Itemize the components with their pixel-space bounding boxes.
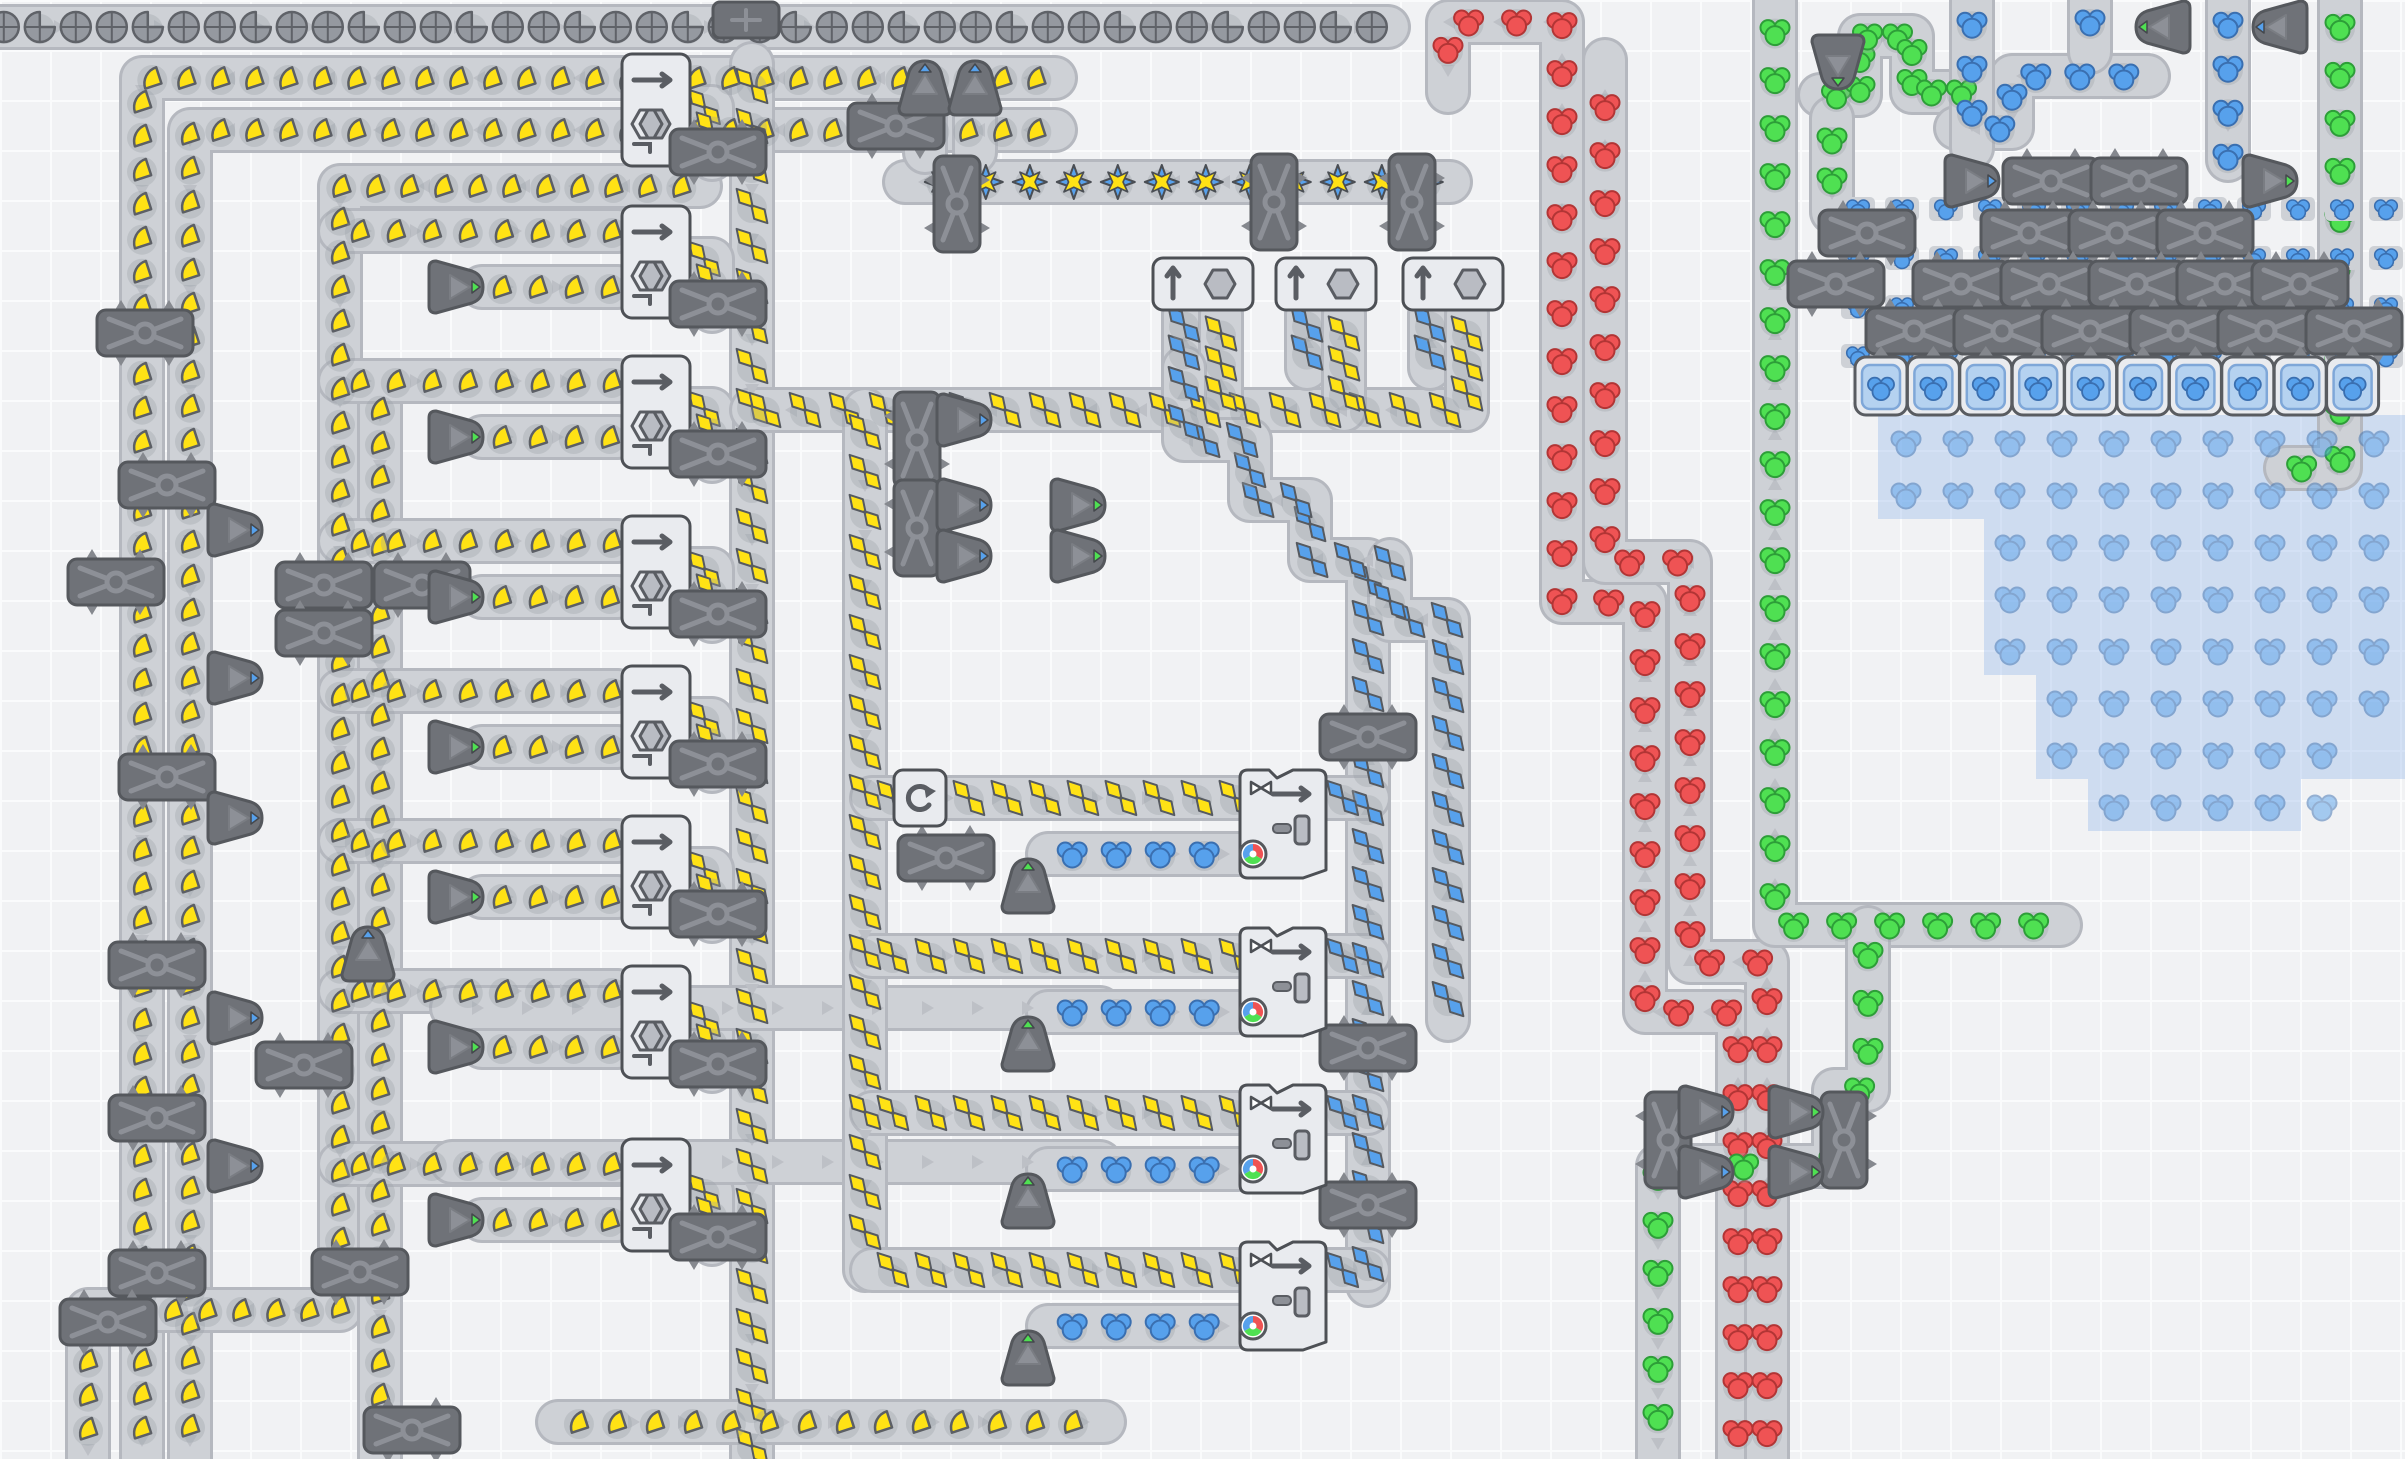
item-red-color-blob [1675, 873, 1705, 903]
item-yellow-wedge-shape [511, 65, 541, 95]
balancer-h[interactable] [276, 600, 372, 666]
item-yellow-wedge-shape [381, 368, 411, 398]
item-blue-color-blob [1101, 841, 1131, 871]
item-red-color-blob [1723, 1324, 1753, 1354]
item-yellow-wedge-shape [561, 978, 591, 1008]
item-green-color-blob [1760, 163, 1790, 193]
balancer-h[interactable] [109, 1240, 205, 1306]
item-yellow-wedge-shape [127, 225, 157, 255]
item-yellow-wedge-shape [595, 734, 625, 764]
item-gray-quartered-circle-shape [817, 12, 847, 44]
item-yellow-wedge-shape [365, 872, 395, 902]
item-blue-color-blob [1189, 1156, 1219, 1186]
item-red-color-blob [1723, 1276, 1753, 1306]
item-yellow-wedge-shape [175, 1175, 205, 1205]
goal-acceptor-cell[interactable] [2327, 346, 2379, 415]
balancer-h[interactable] [1320, 1172, 1416, 1238]
item-yellow-wedge-shape [525, 1151, 555, 1181]
item-yellow-wedge-shape [175, 835, 205, 865]
item-yellow-wedge-shape [1058, 1409, 1088, 1439]
balancer-v[interactable] [924, 156, 990, 252]
item-red-color-blob [1630, 697, 1660, 727]
item-red-color-blob [1547, 60, 1577, 90]
item-red-color-blob [1630, 649, 1660, 679]
item-yellow-wedge-shape [525, 678, 555, 708]
item-yellow-wedge-shape [341, 117, 371, 147]
item-yellow-wedge-shape [205, 65, 235, 95]
item-blue-color-blob [1057, 841, 1087, 871]
item-green-color-blob [1760, 67, 1790, 97]
item-gray-quartered-circle-shape [97, 12, 127, 44]
item-yellow-wedge-shape [417, 528, 447, 558]
item-blue-color-blob [2213, 143, 2243, 173]
item-yellow-wedge-shape [523, 424, 553, 454]
item-yellow-wedge-shape [294, 1297, 324, 1327]
item-blue-color-blob [1145, 999, 1175, 1029]
item-green-color-blob [1875, 912, 1905, 942]
item-yellow-wedge-shape [127, 89, 157, 119]
item-yellow-wedge-shape [523, 734, 553, 764]
item-yellow-wedge-shape [409, 117, 439, 147]
item-red-color-blob [1695, 949, 1725, 979]
item-yellow-wedge-shape [489, 978, 519, 1008]
stacker-up[interactable] [1153, 258, 1253, 310]
item-yellow-wedge-shape [453, 828, 483, 858]
item-yellow-wedge-shape [595, 1034, 625, 1064]
balancer-h[interactable] [97, 300, 193, 366]
item-yellow-wedge-shape [817, 65, 847, 95]
item-green-color-blob [1760, 643, 1790, 673]
balancer-h[interactable] [670, 1204, 766, 1270]
item-yellow-wedge-shape [175, 121, 205, 151]
tunnel-blue[interactable] [208, 1140, 262, 1192]
item-blue-color-blob [1997, 83, 2027, 113]
item-red-color-blob [1664, 999, 1694, 1029]
item-yellow-wedge-shape [453, 368, 483, 398]
tunnel-blue[interactable] [2253, 1, 2307, 53]
item-red-color-blob [1663, 549, 1693, 579]
item-red-color-blob [1547, 588, 1577, 618]
item-yellow-wedge-shape [381, 678, 411, 708]
item-blue-color-blob [1101, 1313, 1131, 1343]
item-green-color-blob [1760, 115, 1790, 145]
item-yellow-wedge-shape [158, 1297, 188, 1327]
stacker-up[interactable] [1403, 258, 1503, 310]
balancer-h[interactable] [670, 881, 766, 947]
item-yellow-wedge-shape [678, 1409, 708, 1439]
item-yellow-wedge-shape [525, 368, 555, 398]
item-yellow-wedge-shape [325, 750, 355, 780]
item-red-color-blob [1630, 889, 1660, 919]
item-yellow-wedge-shape [365, 396, 395, 426]
item-gray-quartered-circle-shape [1177, 12, 1207, 44]
item-red-color-blob [1712, 999, 1742, 1029]
item-red-color-blob [1547, 540, 1577, 570]
item-yellow-wedge-shape [205, 117, 235, 147]
item-green-color-blob [2325, 61, 2355, 91]
item-yellow-wedge-shape [127, 701, 157, 731]
balancer-h[interactable] [312, 1239, 408, 1305]
item-yellow-wedge-shape [365, 498, 395, 528]
item-blue-color-blob [1057, 999, 1087, 1029]
item-yellow-wedge-shape [375, 117, 405, 147]
item-red-color-blob [1547, 108, 1577, 138]
item-yellow-wedge-shape [417, 1151, 447, 1181]
item-yellow-wedge-shape [360, 173, 390, 203]
balancer-h[interactable] [1320, 1015, 1416, 1081]
balancer-h[interactable] [1981, 200, 2077, 266]
balancer-h[interactable] [256, 1032, 352, 1098]
item-red-color-blob [1630, 745, 1660, 775]
balancer-h[interactable] [670, 1031, 766, 1097]
item-yellow-wedge-shape [579, 65, 609, 95]
item-yellow-wedge-shape [545, 65, 575, 95]
item-yellow-wedge-shape [260, 1297, 290, 1327]
item-yellow-wedge-shape [523, 274, 553, 304]
item-yellow-wedge-shape [127, 1415, 157, 1445]
item-yellow-wedge-shape [462, 173, 492, 203]
item-gray-quartered-circle-shape [385, 12, 415, 44]
item-green-color-blob [1971, 912, 2001, 942]
item-yellow-wedge-shape [175, 427, 205, 457]
item-yellow-wedge-shape [175, 189, 205, 219]
item-yellow-wedge-shape [273, 65, 303, 95]
item-yellow-wedge-shape [325, 308, 355, 338]
tunnel-green[interactable] [2136, 1, 2190, 53]
game-viewport[interactable] [0, 0, 2405, 1459]
item-red-color-blob [1547, 444, 1577, 474]
item-yellow-wedge-shape [487, 1034, 517, 1064]
balancer-h[interactable] [670, 119, 766, 185]
item-red-color-blob [1723, 1420, 1753, 1450]
item-yellow-wedge-shape [226, 1297, 256, 1327]
item-gray-quartered-circle-shape [1285, 12, 1315, 44]
item-yellow-wedge-shape [559, 1207, 589, 1237]
goal-acceptor-cell[interactable] [2012, 346, 2064, 415]
item-yellow-wedge-shape [511, 117, 541, 147]
item-gray-quartered-circle-shape [1033, 12, 1063, 44]
item-yellow-wedge-shape [477, 117, 507, 147]
item-yellow-wedge-shape [632, 173, 662, 203]
item-green-color-blob [1643, 1355, 1673, 1385]
item-yellow-wedge-shape [595, 884, 625, 914]
factory-scene [0, 0, 2405, 1459]
item-red-color-blob [1590, 478, 1620, 508]
tunnel-blue[interactable] [937, 479, 991, 531]
item-yellow-wedge-shape [127, 395, 157, 425]
item-yellow-wedge-shape [345, 828, 375, 858]
item-gray-quartered-circle-shape [493, 12, 523, 44]
item-red-color-blob [1590, 334, 1620, 364]
item-gray-quartered-circle-shape [313, 12, 343, 44]
item-blue-color-blob [1189, 1313, 1219, 1343]
item-green-color-blob [1853, 941, 1883, 971]
item-yellow-wedge-shape [564, 1409, 594, 1439]
item-yellow-wedge-shape [127, 123, 157, 153]
goal-acceptor-cell[interactable] [2065, 346, 2117, 415]
item-yellow-wedge-shape [817, 117, 847, 147]
item-green-color-blob [1760, 259, 1790, 289]
item-blue-color-blob [1189, 999, 1219, 1029]
machine[interactable] [713, 2, 779, 38]
balancer-h[interactable] [670, 581, 766, 647]
painter[interactable] [1240, 1242, 1326, 1350]
item-yellow-wedge-shape [417, 678, 447, 708]
tunnel-blue[interactable] [208, 792, 262, 844]
item-yellow-wedge-shape [561, 828, 591, 858]
item-red-color-blob [1590, 238, 1620, 268]
item-green-color-blob [1760, 739, 1790, 769]
item-red-color-blob [1615, 549, 1645, 579]
goal-acceptor-cell[interactable] [1855, 346, 1907, 415]
item-red-color-blob [1752, 1324, 1782, 1354]
item-yellow-wedge-shape [175, 1039, 205, 1069]
goal-acceptor-cell[interactable] [2169, 346, 2221, 415]
item-yellow-wedge-shape [489, 218, 519, 248]
item-yellow-wedge-shape [1021, 117, 1051, 147]
item-green-color-blob [1817, 127, 1847, 157]
item-green-color-blob [1643, 1211, 1673, 1241]
item-yellow-wedge-shape [175, 393, 205, 423]
item-yellow-wedge-shape [175, 359, 205, 389]
item-yellow-wedge-shape [561, 218, 591, 248]
item-yellow-wedge-shape [325, 1192, 355, 1222]
item-yellow-wedge-shape [564, 173, 594, 203]
item-yellow-wedge-shape [868, 1409, 898, 1439]
item-green-color-blob [1817, 167, 1847, 197]
item-yellow-wedge-shape [192, 1297, 222, 1327]
item-yellow-wedge-shape [716, 1409, 746, 1439]
item-yellow-wedge-shape [127, 871, 157, 901]
item-yellow-wedge-shape [409, 65, 439, 95]
item-yellow-wedge-shape [175, 563, 205, 593]
item-yellow-wedge-shape [489, 828, 519, 858]
item-blue-color-blob [1957, 11, 1987, 41]
item-gray-quartered-circle-shape [205, 12, 235, 44]
item-yellow-wedge-shape [345, 528, 375, 558]
item-yellow-wedge-shape [417, 828, 447, 858]
item-red-color-blob [1743, 949, 1773, 979]
goal-acceptor-cell[interactable] [2274, 346, 2326, 415]
balancer-port-with-item [2369, 246, 2403, 270]
item-yellow-wedge-shape [345, 218, 375, 248]
balancer-h[interactable] [898, 825, 994, 891]
item-red-color-blob [1752, 1372, 1782, 1402]
item-yellow-wedge-shape [525, 978, 555, 1008]
item-yellow-wedge-shape [127, 1177, 157, 1207]
item-yellow-wedge-shape [345, 678, 375, 708]
item-blue-color-blob [2213, 99, 2243, 129]
balancer-h[interactable] [1788, 251, 1884, 317]
item-yellow-wedge-shape [365, 1348, 395, 1378]
item-gray-quartered-circle-shape [1249, 12, 1279, 44]
item-blue-color-blob [2065, 63, 2095, 93]
balancer-h[interactable] [68, 549, 164, 615]
balancer-h[interactable] [670, 421, 766, 487]
item-green-color-blob [1760, 691, 1790, 721]
item-yellow-wedge-shape [487, 884, 517, 914]
item-yellow-wedge-shape [365, 1178, 395, 1208]
rotator[interactable] [894, 770, 946, 826]
item-green-color-blob [1760, 883, 1790, 913]
item-yellow-wedge-shape [365, 1008, 395, 1038]
item-yellow-wedge-shape [381, 218, 411, 248]
item-red-color-blob [1675, 921, 1705, 951]
item-gray-quartered-circle-shape [961, 12, 991, 44]
item-yellow-wedge-shape [487, 274, 517, 304]
item-blue-color-blob [2213, 11, 2243, 41]
item-yellow-wedge-shape [489, 1151, 519, 1181]
item-yellow-wedge-shape [525, 528, 555, 558]
item-red-color-blob [1675, 777, 1705, 807]
item-yellow-wedge-shape [73, 1416, 103, 1446]
item-green-color-blob [1897, 39, 1927, 69]
item-yellow-wedge-shape [489, 678, 519, 708]
item-yellow-wedge-shape [325, 478, 355, 508]
item-yellow-wedge-shape [239, 117, 269, 147]
item-yellow-wedge-shape [325, 342, 355, 372]
item-yellow-wedge-shape [175, 665, 205, 695]
item-yellow-wedge-shape [375, 65, 405, 95]
item-gray-quartered-circle-shape [1357, 12, 1387, 44]
item-yellow-wedge-shape [381, 828, 411, 858]
balancer-h[interactable] [1320, 704, 1416, 770]
goal-acceptor-cell[interactable] [2222, 346, 2274, 415]
item-yellow-wedge-shape [127, 191, 157, 221]
balancer-h[interactable] [119, 744, 215, 810]
balancer-h[interactable] [2069, 200, 2165, 266]
balancer-port-with-item [2325, 197, 2359, 221]
item-yellow-wedge-shape [239, 65, 269, 95]
item-green-color-blob [1827, 912, 1857, 942]
item-yellow-wedge-shape [1021, 65, 1051, 95]
item-blue-color-blob [2213, 55, 2243, 85]
item-yellow-wedge-shape [830, 1409, 860, 1439]
item-yellow-wedge-shape [417, 978, 447, 1008]
item-yellow-wedge-shape [1020, 1409, 1050, 1439]
item-yellow-wedge-shape [443, 65, 473, 95]
item-red-color-blob [1590, 526, 1620, 556]
tunnel-blue[interactable] [208, 652, 262, 704]
tunnel-green[interactable] [1051, 530, 1105, 582]
item-red-color-blob [1590, 94, 1620, 124]
item-yellow-wedge-shape [489, 528, 519, 558]
balancer-h[interactable] [670, 731, 766, 797]
item-yellow-wedge-shape [175, 1345, 205, 1375]
item-yellow-wedge-shape [428, 173, 458, 203]
item-gray-quartered-circle-shape [925, 12, 955, 44]
balancer-h[interactable] [276, 552, 372, 618]
item-red-color-blob [1630, 985, 1660, 1015]
balancer-v[interactable] [1379, 154, 1445, 250]
item-red-color-blob [1594, 589, 1624, 619]
balancer-h[interactable] [109, 1085, 205, 1151]
item-yellow-wedge-shape [175, 223, 205, 253]
item-red-color-blob [1630, 937, 1660, 967]
goal-acceptor-cell[interactable] [2117, 346, 2169, 415]
item-red-color-blob [1630, 793, 1660, 823]
item-yellow-wedge-shape [365, 1110, 395, 1140]
balancer-v[interactable] [1241, 154, 1307, 250]
item-red-color-blob [1547, 300, 1577, 330]
item-yellow-wedge-shape [792, 1409, 822, 1439]
item-green-color-blob [1760, 835, 1790, 865]
item-yellow-wedge-shape [394, 173, 424, 203]
item-red-color-blob [1590, 142, 1620, 172]
goal-acceptor-cell[interactable] [1960, 346, 2012, 415]
item-yellow-wedge-shape [559, 1034, 589, 1064]
item-red-color-blob [1630, 601, 1660, 631]
item-red-color-blob [1547, 12, 1577, 42]
item-yellow-wedge-shape [477, 65, 507, 95]
tunnel-blue[interactable] [937, 530, 991, 582]
item-yellow-wedge-shape [561, 1151, 591, 1181]
item-yellow-wedge-shape [127, 837, 157, 867]
balancer-h[interactable] [109, 932, 205, 998]
stacker-up[interactable] [1276, 258, 1376, 310]
item-blue-color-blob [1957, 99, 1987, 129]
item-gray-quartered-circle-shape [529, 12, 559, 44]
item-yellow-wedge-shape [175, 869, 205, 899]
painter[interactable] [1240, 928, 1326, 1036]
item-yellow-wedge-shape [987, 117, 1017, 147]
tunnel-blue[interactable] [208, 504, 262, 556]
painter[interactable] [1240, 1085, 1326, 1193]
item-green-color-blob [1853, 989, 1883, 1019]
item-yellow-wedge-shape [127, 667, 157, 697]
item-yellow-wedge-shape [175, 631, 205, 661]
balancer-h[interactable] [60, 1289, 156, 1355]
tunnel-blue[interactable] [208, 992, 262, 1044]
item-yellow-wedge-shape [559, 884, 589, 914]
balancer-h[interactable] [119, 452, 215, 518]
item-blue-color-blob [1145, 1156, 1175, 1186]
item-yellow-wedge-shape [487, 734, 517, 764]
item-yellow-wedge-shape [640, 1409, 670, 1439]
goal-acceptor-cell[interactable] [1907, 346, 1959, 415]
item-yellow-wedge-shape [175, 257, 205, 287]
item-yellow-wedge-shape [365, 464, 395, 494]
item-red-color-blob [1433, 36, 1463, 66]
item-yellow-wedge-shape [175, 1413, 205, 1443]
painter[interactable] [1240, 770, 1326, 878]
balancer-h[interactable] [364, 1397, 460, 1459]
balancer-h[interactable] [2157, 200, 2253, 266]
item-blue-color-blob [1101, 1156, 1131, 1186]
item-gray-quartered-circle-shape [277, 12, 307, 44]
item-yellow-wedge-shape [175, 155, 205, 185]
item-yellow-wedge-shape [365, 770, 395, 800]
tunnel-green[interactable] [1051, 479, 1105, 531]
item-red-color-blob [1630, 841, 1660, 871]
balancer-h[interactable] [1819, 200, 1915, 266]
item-yellow-wedge-shape [489, 368, 519, 398]
item-red-color-blob [1547, 492, 1577, 522]
item-yellow-wedge-shape [175, 529, 205, 559]
item-yellow-wedge-shape [487, 424, 517, 454]
item-green-color-blob [1779, 912, 1809, 942]
item-green-color-blob [2019, 912, 2049, 942]
item-red-color-blob [1590, 430, 1620, 460]
item-green-color-blob [1760, 307, 1790, 337]
item-yellow-wedge-shape [325, 886, 355, 916]
balancer-h[interactable] [670, 271, 766, 337]
item-red-color-blob [1752, 1228, 1782, 1258]
item-red-color-blob [1723, 1228, 1753, 1258]
item-blue-color-blob [1057, 1156, 1087, 1186]
item-red-color-blob [1590, 286, 1620, 316]
item-red-color-blob [1547, 204, 1577, 234]
